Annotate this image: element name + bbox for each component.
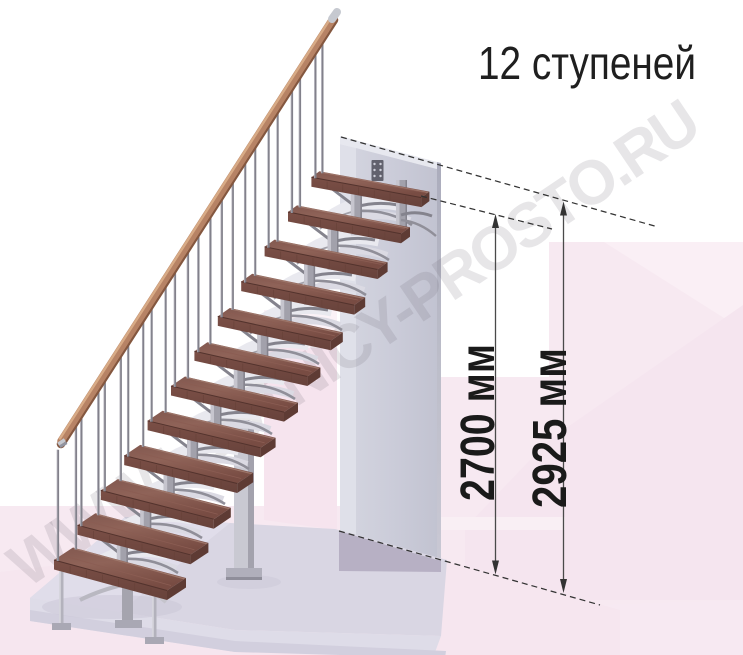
svg-text:12 ступеней: 12 ступеней bbox=[478, 37, 696, 89]
svg-text:2700 мм: 2700 мм bbox=[452, 344, 505, 501]
svg-text:2925 мм: 2925 мм bbox=[524, 348, 577, 508]
